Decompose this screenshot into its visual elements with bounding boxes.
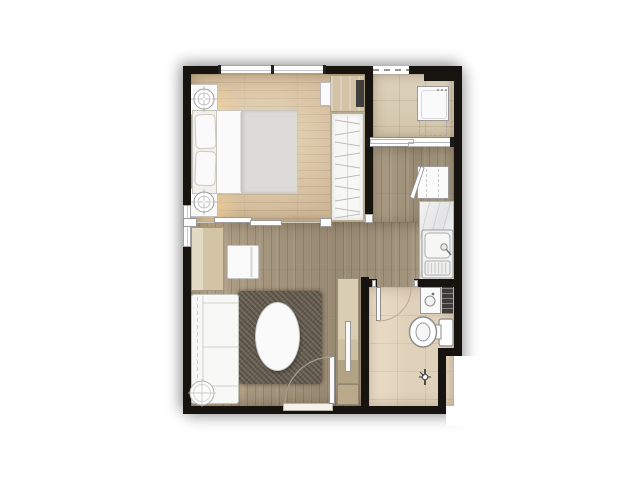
tv [345,321,351,372]
pillow [194,114,216,150]
entrance-door-leaf [329,356,335,404]
wall-right [454,66,462,356]
bed-duvet [241,111,297,193]
fridge-seal-line [426,169,428,197]
dashed-line [373,69,409,71]
sliding-pane [408,142,452,147]
washing-machine-door [421,90,447,119]
oval-coffee-table [255,302,300,371]
wall-bottom-left [183,406,283,414]
window-tick [366,137,370,147]
window-tick [323,65,326,74]
divider-wall-cap [365,214,373,223]
kitchen-counter [419,201,454,285]
sliding-door-pane [250,220,282,226]
fridge-seal-line [438,169,440,197]
bathroom-door-leaf [376,287,381,321]
sliding-door-frame-stub [183,218,197,227]
window-tick [450,137,454,147]
wall-notch-v [438,348,446,414]
door-frame-cap [414,280,418,287]
sideboard-cabinet [191,227,224,291]
wall-bathroom-north-b [414,279,454,287]
sofa [191,294,239,404]
balcony-sliding-window [366,137,454,147]
tv-console-base [337,384,359,405]
balcony-open-edge [373,66,409,74]
wall-corner-block [424,66,454,81]
window-tick [218,65,221,74]
entrance-threshold [283,403,333,411]
pillow [194,151,216,187]
sliding-door-frame-stub [320,218,332,227]
floor-plan-canvas [0,0,640,480]
tv-panel [356,80,364,107]
wall-bathroom-west [361,277,369,414]
sliding-door-pane [214,217,252,223]
vanity-basin-cabinet [420,287,441,314]
chair [227,245,259,279]
washer-door-swing [419,121,447,136]
window-tick [271,65,274,74]
wardrobe [330,112,365,222]
washing-machine [417,86,449,121]
towel-rail [442,287,453,314]
wall-shelf [320,82,331,106]
refrigerator [417,166,449,199]
wall-bottom-right [333,406,446,414]
door-frame-cap [372,280,376,287]
